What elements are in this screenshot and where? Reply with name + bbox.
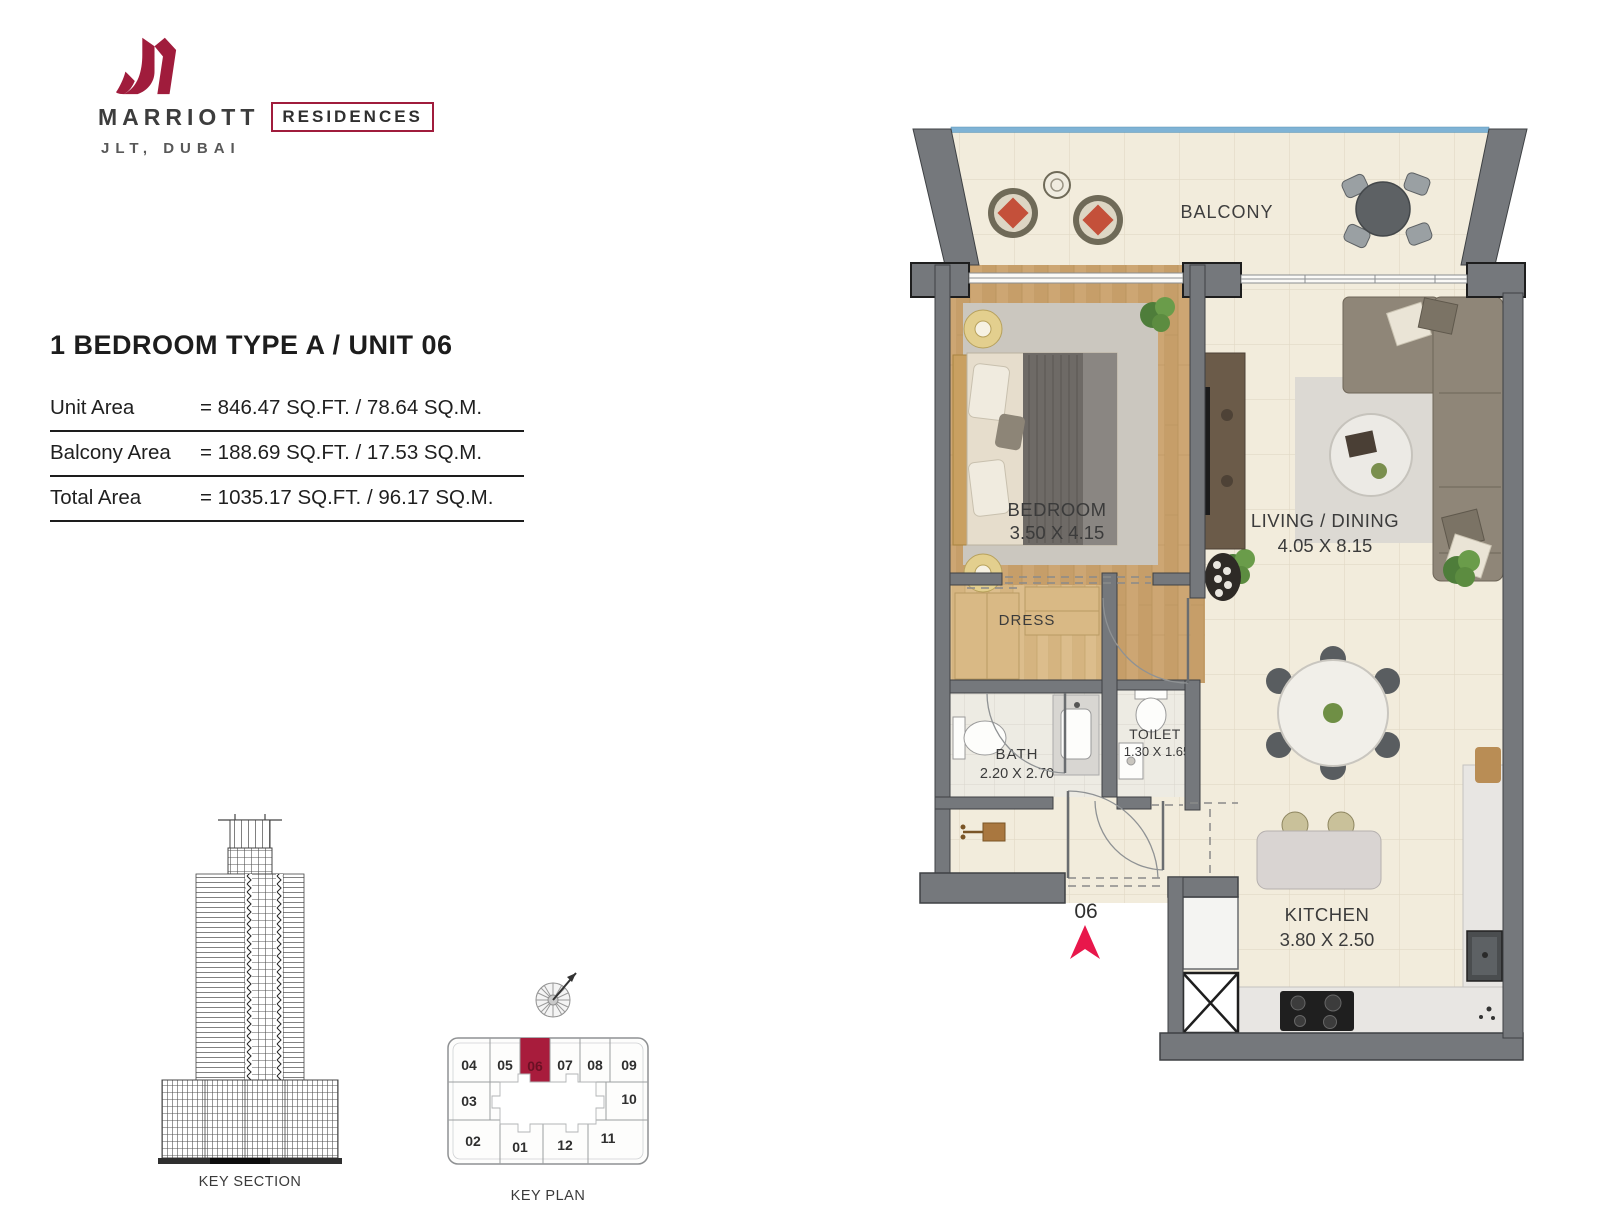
floor-plan: BALCONY (905, 125, 1535, 1065)
dress-label: DRESS (999, 612, 1056, 629)
kitchen-sink (1467, 931, 1502, 981)
cooktop (1280, 991, 1354, 1031)
tower-drawing (158, 814, 342, 1164)
key-section: KEY SECTION (150, 812, 350, 1192)
cutting-board (1475, 747, 1501, 783)
toilet-label: TOILET (1129, 726, 1181, 742)
residences-badge: RESIDENCES (271, 102, 434, 132)
balcony-label: BALCONY (1180, 202, 1273, 222)
unit-number-06: 06 (527, 1058, 543, 1074)
kitchen-counter-bottom (1238, 987, 1505, 1033)
vanity-sink (1053, 695, 1099, 775)
compass-north-icon (536, 973, 576, 1017)
exterior-corridor (920, 903, 1168, 1035)
brand-wordmark: MARRIOTT (98, 104, 259, 131)
marriott-m-icon (108, 34, 186, 96)
decor-dish (1205, 553, 1241, 601)
unit-number-11: 11 (601, 1130, 616, 1146)
area-value: = 188.69 SQ.FT. / 17.53 SQ.M. (200, 441, 482, 465)
bedroom-dim: 3.50 X 4.15 (1010, 522, 1105, 543)
area-value: = 846.47 SQ.FT. / 78.64 SQ.M. (200, 396, 482, 420)
bath-dim: 2.20 X 2.70 (980, 766, 1054, 782)
unit-number-12: 12 (557, 1137, 573, 1153)
area-label: Balcony Area (50, 441, 200, 465)
coffee-table (1330, 414, 1412, 496)
table-row-total-area: Total Area = 1035.17 SQ.FT. / 96.17 SQ.M… (50, 477, 524, 522)
unit-number-07: 07 (557, 1057, 573, 1073)
area-label: Unit Area (50, 396, 200, 420)
unit-number-08: 08 (587, 1057, 603, 1073)
unit-info-block: 1 BEDROOM TYPE A / UNIT 06 Unit Area = 8… (50, 330, 524, 522)
area-table: Unit Area = 846.47 SQ.FT. / 78.64 SQ.M. … (50, 387, 524, 522)
bedroom-label: BEDROOM (1007, 499, 1106, 520)
kitchen-label: KITCHEN (1285, 904, 1370, 925)
living-label: LIVING / DINING (1251, 510, 1399, 531)
core-outline (492, 1074, 604, 1132)
bath-label: BATH (996, 746, 1039, 763)
area-value: = 1035.17 SQ.FT. / 96.17 SQ.M. (200, 486, 493, 510)
unit-number-10: 10 (621, 1091, 637, 1107)
toilet-dim: 1.30 X 1.65 (1124, 744, 1191, 759)
key-plan-caption: KEY PLAN (511, 1188, 586, 1204)
living-dim: 4.05 X 8.15 (1278, 535, 1373, 556)
balcony-side-table (1044, 172, 1070, 198)
area-label: Total Area (50, 486, 200, 510)
page-title: 1 BEDROOM TYPE A / UNIT 06 (50, 330, 524, 361)
floorplan-brochure-page: { "logo": { "brand": "MARRIOTT", "boxed"… (0, 0, 1600, 1216)
marriott-logo: MARRIOTT RESIDENCES JLT, DUBAI (98, 34, 434, 157)
key-plan-plate: 04 05 06 07 08 09 03 10 02 01 12 11 (448, 1038, 648, 1164)
unit-number-05: 05 (497, 1057, 513, 1073)
balcony-glass-railing (951, 127, 1489, 133)
unit-number-02: 02 (465, 1133, 481, 1149)
balcony: BALCONY (951, 127, 1489, 265)
unit-number-03: 03 (461, 1093, 477, 1109)
table-row-balcony-area: Balcony Area = 188.69 SQ.FT. / 17.53 SQ.… (50, 432, 524, 477)
service-shaft (1183, 897, 1238, 1033)
nightstand-lamp (964, 310, 1002, 348)
unit-number-01: 01 (512, 1139, 528, 1155)
unit-number-04: 04 (461, 1057, 477, 1073)
table-row-unit-area: Unit Area = 846.47 SQ.FT. / 78.64 SQ.M. (50, 387, 524, 432)
key-plan: 04 05 06 07 08 09 03 10 02 01 12 11 KEY … (428, 958, 668, 1208)
unit-number-09: 09 (621, 1057, 637, 1073)
coat-hook (983, 823, 1005, 841)
key-section-caption: KEY SECTION (199, 1174, 302, 1190)
kitchen-dim: 3.80 X 2.50 (1280, 929, 1375, 950)
entrance-unit-number: 06 (1074, 900, 1097, 923)
location-text: JLT, DUBAI (101, 140, 434, 157)
